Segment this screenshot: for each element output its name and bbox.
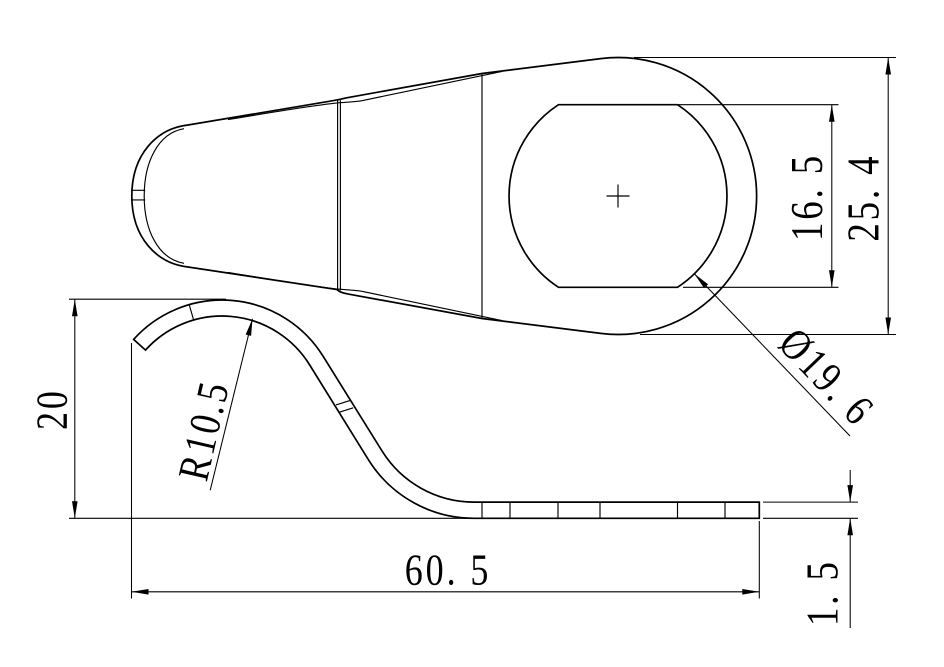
svg-text:25. 4: 25. 4 xyxy=(838,154,888,242)
svg-text:20: 20 xyxy=(27,388,76,430)
svg-text:1. 5: 1. 5 xyxy=(797,559,847,626)
svg-text:16. 5: 16. 5 xyxy=(782,153,832,241)
svg-text:60. 5: 60. 5 xyxy=(405,545,491,594)
